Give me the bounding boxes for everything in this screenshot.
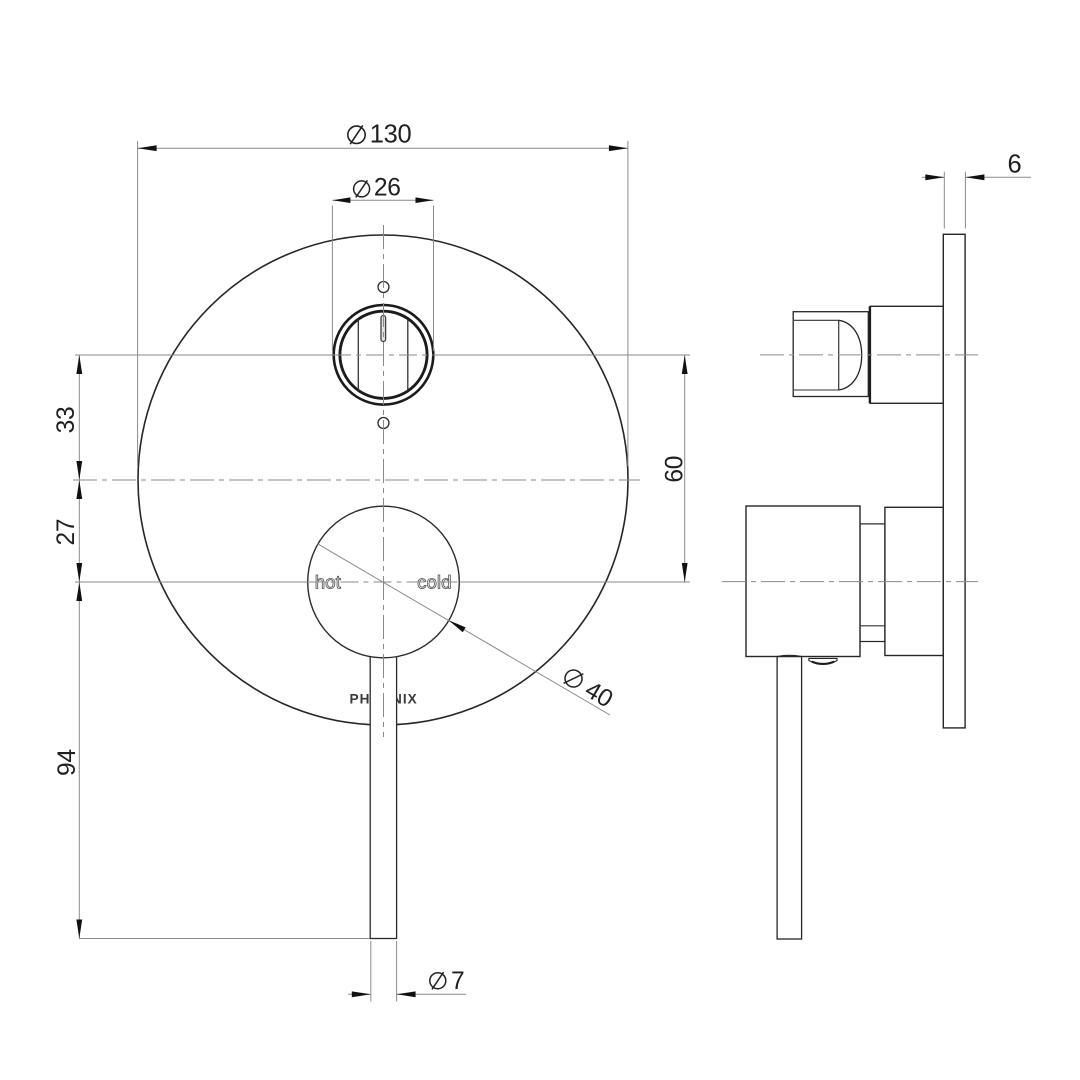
svg-text:94: 94 — [54, 749, 81, 776]
svg-text:33: 33 — [53, 407, 80, 434]
svg-text:130: 130 — [370, 120, 412, 148]
svg-text:27: 27 — [53, 519, 80, 546]
svg-text:60: 60 — [662, 456, 689, 483]
svg-text:7: 7 — [451, 968, 465, 995]
svg-text:6: 6 — [1008, 151, 1022, 179]
svg-text:26: 26 — [374, 175, 401, 202]
